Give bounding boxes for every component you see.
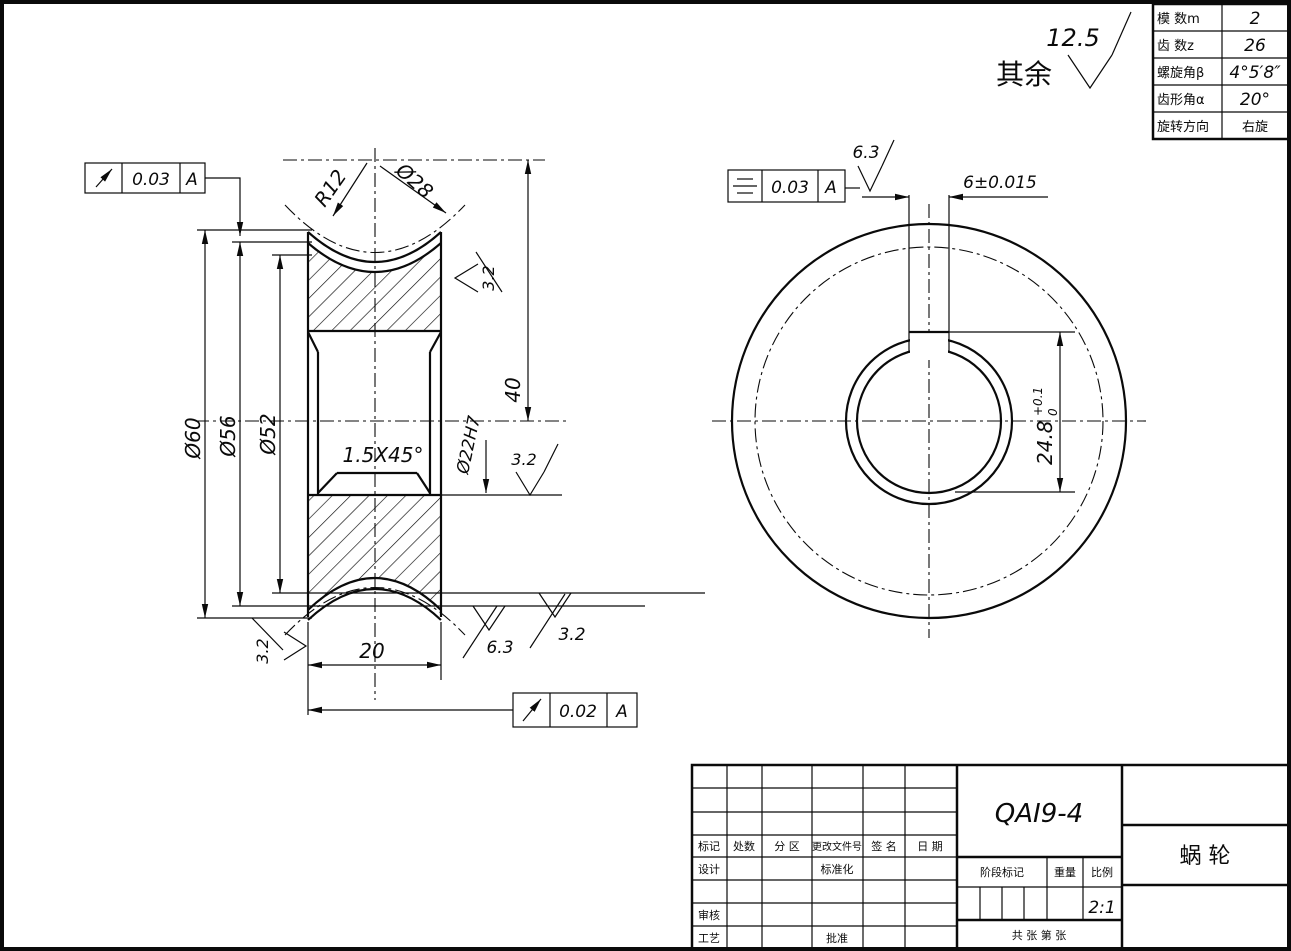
- roughness-face-left: 3.2: [252, 618, 306, 664]
- param-value-module: 2: [1250, 9, 1261, 29]
- symmetry-value: 0.03: [771, 178, 809, 198]
- symmetry-datum: A: [824, 178, 837, 198]
- runout-top-datum: A: [185, 170, 198, 190]
- general-note-prefix: 其余: [996, 58, 1052, 91]
- tb-scale-label: 比例: [1091, 865, 1113, 879]
- worm-wheel-drawing: 其余 12.5 模 数m 2 齿 数z 26 螺旋角β 4°5′8″ 齿形角α …: [0, 0, 1291, 951]
- param-value-helix-angle: 4°5′8″: [1229, 63, 1281, 83]
- dim-dia52: Ø52: [256, 413, 280, 455]
- runout-bottom-datum: A: [615, 702, 628, 722]
- runout-top-value: 0.03: [132, 170, 170, 190]
- title-block: 标记 处数 分 区 更改文件号 签 名 日 期 设计 标准化 审核 工艺 批准 …: [692, 765, 1289, 949]
- roughness-face-right: 3.2: [530, 593, 586, 648]
- drawing-number: QAI9-4: [995, 799, 1083, 829]
- runout-frame-top: 0.03 A: [85, 163, 240, 236]
- dim-dia28: Ø28: [391, 157, 438, 203]
- param-value-teeth: 26: [1244, 36, 1266, 56]
- param-label-module: 模 数m: [1157, 12, 1200, 27]
- keyway-depth-value: 24.8: [1033, 420, 1057, 465]
- roughness-keyway: 6.3: [852, 140, 894, 191]
- roughness-bore-value: 3.2: [511, 450, 536, 469]
- circular-runout-icon: [523, 699, 541, 721]
- param-value-rotation: 右旋: [1242, 120, 1268, 135]
- section-view: Ø60 Ø56 Ø52 40 R12 Ø28 1.5X45° Ø22H7 20 …: [85, 148, 705, 727]
- bore-circle: [857, 349, 1001, 493]
- keyway-depth-tol-upper: +0.1: [1031, 387, 1045, 416]
- general-roughness-value: 12.5: [1046, 24, 1099, 52]
- dim-r12: R12: [309, 165, 351, 211]
- dim-dia60: Ø60: [181, 417, 205, 459]
- tb-design: 设计: [698, 863, 720, 876]
- tb-header-zone: 分 区: [774, 840, 800, 853]
- roughness-face-left-value: 3.2: [253, 638, 272, 663]
- param-label-teeth: 齿 数z: [1157, 39, 1194, 54]
- tb-sheet-label: 共 张 第 张: [1012, 928, 1067, 942]
- tb-process: 工艺: [698, 932, 720, 945]
- roughness-rim-value: 3.2: [479, 265, 498, 290]
- tb-weight-label: 重量: [1054, 865, 1076, 879]
- symmetry-frame: 0.03 A: [728, 170, 860, 202]
- keyway-depth-tol-lower: 0: [1046, 408, 1060, 416]
- tb-header-docno: 更改文件号: [812, 840, 862, 853]
- drawing-sheet: 其余 12.5 模 数m 2 齿 数z 26 螺旋角β 4°5′8″ 齿形角α …: [0, 0, 1291, 951]
- keyway-gap: [910, 332, 948, 360]
- tb-header-mark: 标记: [698, 839, 720, 853]
- roughness-symbol-tail: [1112, 12, 1131, 55]
- general-roughness-note: 其余 12.5: [996, 12, 1131, 91]
- part-name: 蜗 轮: [1180, 844, 1231, 869]
- roughness-rim: 3.2: [455, 252, 502, 292]
- dim-chamfer: 1.5X45°: [343, 443, 424, 467]
- tb-check: 审核: [698, 908, 720, 922]
- tb-standardize: 标准化: [821, 862, 854, 876]
- roughness-symbol-icon: [1068, 55, 1112, 88]
- tb-stage-label: 阶段标记: [980, 865, 1024, 879]
- parameter-table: 模 数m 2 齿 数z 26 螺旋角β 4°5′8″ 齿形角α 20° 旋转方向…: [1153, 4, 1289, 139]
- dim-keyway-depth: 24.8 +0.1 0: [1031, 387, 1060, 465]
- scale-value: 2:1: [1088, 898, 1115, 918]
- dim-40: 40: [501, 377, 525, 402]
- roughness-keyway-value: 6.3: [852, 143, 879, 163]
- sheet-border: [2, 2, 1289, 949]
- runout-frame-bottom: 0.02 A: [513, 693, 637, 727]
- tb-header-signature: 签 名: [871, 839, 897, 853]
- dim-keyway-width: 6±0.015: [963, 173, 1037, 193]
- tb-approve: 批准: [826, 931, 848, 945]
- dim-bore: Ø22H7: [453, 414, 485, 477]
- dim-20: 20: [359, 639, 384, 663]
- tb-header-count: 处数: [733, 840, 755, 853]
- roughness-throat-value: 6.3: [486, 638, 513, 658]
- symmetry-icon: [733, 179, 757, 193]
- tb-header-date: 日 期: [917, 840, 943, 853]
- dim-dia56: Ø56: [216, 415, 240, 457]
- front-view: 6±0.015 24.8 +0.1 0 6.3 0.03 A: [712, 140, 1146, 638]
- roughness-face-right-value: 3.2: [558, 625, 585, 645]
- circular-runout-icon: [96, 169, 112, 187]
- param-value-profile-angle: 20°: [1240, 90, 1270, 110]
- param-label-rotation: 旋转方向: [1157, 119, 1209, 135]
- runout-bottom-value: 0.02: [559, 702, 597, 722]
- roughness-throat: 6.3: [463, 606, 514, 658]
- roughness-bore: 3.2: [511, 444, 558, 495]
- param-label-helix-angle: 螺旋角β: [1157, 66, 1204, 81]
- param-label-profile-angle: 齿形角α: [1157, 93, 1205, 108]
